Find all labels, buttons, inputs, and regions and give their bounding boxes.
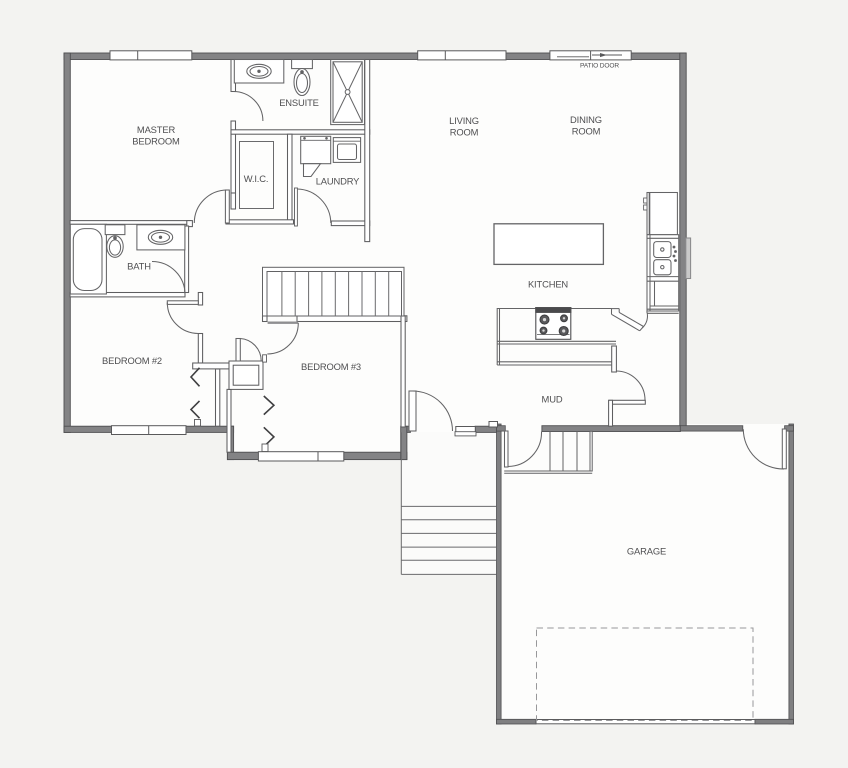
svg-text:BATH: BATH [127, 261, 151, 272]
svg-text:DINING: DINING [570, 114, 602, 125]
svg-text:LAUNDRY: LAUNDRY [316, 176, 360, 187]
svg-text:BEDROOM: BEDROOM [132, 136, 180, 147]
svg-text:ROOM: ROOM [572, 126, 601, 137]
svg-text:BEDROOM #3: BEDROOM #3 [301, 361, 361, 372]
svg-text:LIVING: LIVING [449, 115, 479, 126]
svg-text:KITCHEN: KITCHEN [528, 278, 568, 289]
svg-text:ROOM: ROOM [450, 127, 479, 138]
svg-text:BEDROOM #2: BEDROOM #2 [102, 355, 162, 366]
svg-text:W.I.C.: W.I.C. [244, 173, 269, 184]
svg-text:ENSUITE: ENSUITE [279, 97, 319, 108]
svg-text:GARAGE: GARAGE [627, 546, 666, 557]
svg-text:MASTER: MASTER [137, 124, 176, 135]
svg-text:MUD: MUD [542, 394, 563, 405]
svg-text:PATIO DOOR: PATIO DOOR [580, 62, 619, 69]
